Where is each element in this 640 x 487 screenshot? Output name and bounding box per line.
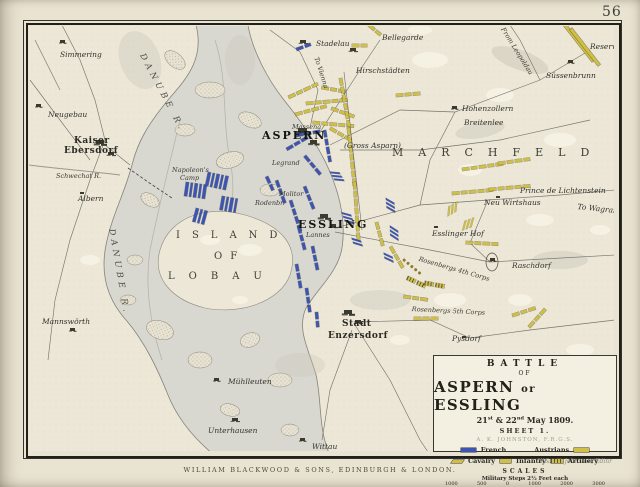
infantry-label: Infantry	[516, 457, 546, 465]
town-marker	[232, 418, 238, 421]
cartouche-sheet: SHEET 1.	[500, 427, 551, 435]
scale-tick-label: 3000	[592, 482, 605, 487]
steps-scale: 10005000100020003000	[445, 482, 605, 487]
map-label-hirschstädten: Hirschstädten	[356, 66, 410, 75]
unit-group-french-cav	[384, 254, 393, 261]
map-label-pysdorf: Pysdorf	[452, 334, 481, 343]
french-color-swatch	[461, 448, 476, 452]
cartouche-title-of: OF	[518, 370, 531, 377]
town-marker	[214, 378, 219, 381]
cartouche-title-battle: BATTLE	[487, 359, 563, 369]
title-aspern: ASPERN	[434, 378, 514, 396]
infantry-symbol-swatch	[500, 459, 511, 463]
unit-group-french-cav	[352, 238, 361, 246]
cavalry-label: Cavalry	[468, 457, 495, 465]
cavalry-symbol-swatch	[451, 460, 464, 463]
french-label: French	[481, 446, 506, 454]
town-marker	[490, 258, 495, 261]
unit-group-french-cav	[390, 228, 398, 238]
unit-group-austrian-b	[414, 317, 438, 320]
map-label-napoleon-s: Napoleon's	[172, 166, 209, 174]
town-marker	[300, 438, 305, 441]
map-label-süller: Süller	[322, 26, 340, 27]
atlas-page: 56	[0, 0, 640, 487]
map-label-unterhausen: Unterhausen	[208, 426, 257, 435]
map-label-massena: Massena	[292, 123, 321, 131]
austrian-color-swatch	[574, 448, 589, 452]
map-label-camp: Camp	[180, 174, 199, 182]
cartouche-title-main: ASPERN or ESSLING	[434, 378, 616, 414]
legend-row-arms: Cavalry Infantry Artillery	[452, 457, 598, 465]
page-number: 56	[602, 4, 622, 20]
scale-tick-label: 0	[506, 482, 509, 487]
unit-group-french-cav	[386, 200, 395, 211]
map-label-island: ISLAND	[176, 230, 289, 241]
map-label-neugebau: Neugebau	[48, 110, 87, 119]
map-label-mannswörth: Mannswörth	[42, 317, 90, 326]
map-label-stadt: Stadt	[342, 319, 371, 329]
austrians-label: Austrians	[534, 446, 569, 454]
unit-group-french-tall	[220, 196, 239, 213]
map-label-schwechat-r: Schwechat R.	[56, 172, 101, 180]
map-label-raschdorf: Raschdorf	[512, 261, 551, 270]
town-marker	[300, 40, 306, 43]
legend-row-sides: French Austrians	[461, 446, 589, 454]
town-marker	[350, 48, 356, 51]
artillery-symbol-swatch	[551, 459, 563, 463]
map-label-lobau: LOBAU	[168, 271, 276, 282]
map-label-reserve: Reserve	[590, 42, 614, 51]
town-marker	[452, 106, 457, 109]
map-label-lannes: Lannes	[306, 231, 330, 239]
artillery-label: Artillery	[568, 457, 598, 465]
map-label-legrand: Legrand	[272, 159, 300, 167]
title-cartouche: BATTLE OF ASPERN or ESSLING 21st & 22nd …	[433, 355, 617, 452]
map-label-enzersdorf: Enzersdorf	[328, 331, 388, 341]
map-label-kaiser: Kaiser	[74, 136, 110, 146]
map-label-esslinger-hof: Esslinger Hof	[432, 229, 484, 238]
map-label-prince-de-lichtenstein: Prince de Lichtenstein	[520, 186, 606, 195]
town-marker	[344, 310, 352, 314]
map-label-süssenbrunn: Süssenbrunn	[546, 71, 596, 80]
town-marker	[70, 328, 75, 331]
title-essling: ESSLING	[434, 396, 521, 414]
cartouche-date: 21st & 22nd May 1809.	[477, 415, 574, 425]
map-label-breitenlee: Breitenlee	[464, 118, 504, 127]
title-or: or	[521, 384, 536, 395]
map-label-hohenzollern: Hohenzollern	[462, 104, 513, 113]
unit-group-french-tall	[184, 182, 207, 199]
unit-group-austrian-b	[352, 44, 367, 47]
map-label-ebersdorf: Ebersdorf	[64, 146, 118, 156]
cartouche-author: A. K. JOHNSTON, F.R.G.S.	[476, 437, 573, 443]
map-label-bellegarde: Bellegarde	[382, 33, 423, 42]
map-label-simmering: Simmering	[60, 50, 102, 59]
map-label-marchfeld: MARCHFELD	[392, 146, 604, 159]
map-label-stadelau: Stadelau	[316, 39, 350, 48]
map-label-mühlleuten: Mühlleuten	[228, 377, 272, 386]
town-marker	[568, 60, 573, 63]
map-label-molitor: Molitor	[279, 190, 303, 198]
map-label-essling: ESSLING	[298, 218, 368, 231]
map-label-wittau: Wittau	[312, 442, 337, 451]
map-label-of: OF	[214, 251, 245, 262]
town-marker	[434, 226, 438, 228]
map-label-albern: Albern	[78, 194, 103, 203]
scale-tick-label: 1000	[445, 482, 458, 487]
scale-tick-label: 1000	[528, 482, 541, 487]
scale-tick-label: 500	[477, 482, 487, 487]
map-label-neu-wirtshaus: Neu Wirtshaus	[484, 198, 541, 207]
town-marker	[36, 104, 41, 107]
town-marker	[60, 40, 65, 43]
map-label-rodenbr: Rodenbr.	[255, 199, 285, 207]
scale-tick-label: 2000	[560, 482, 573, 487]
scales-heading: SCALES	[503, 468, 548, 475]
